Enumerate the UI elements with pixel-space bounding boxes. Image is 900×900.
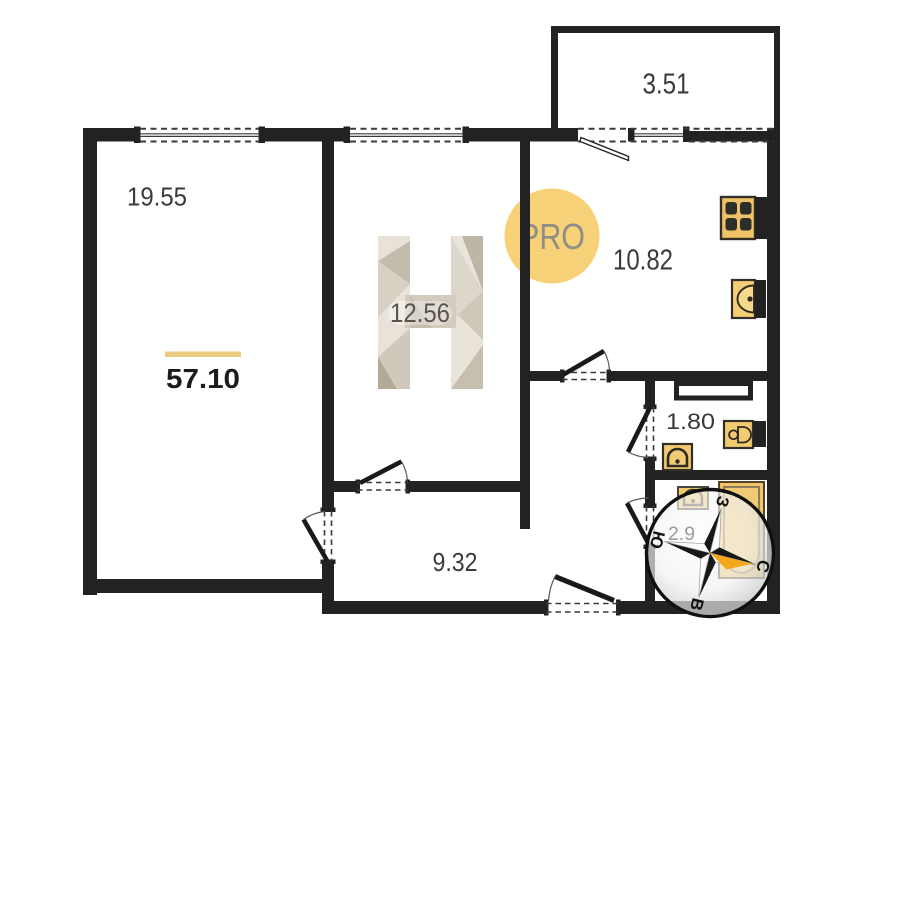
svg-text:9.32: 9.32	[433, 547, 478, 577]
svg-text:19.55: 19.55	[127, 184, 187, 212]
svg-text:12.56: 12.56	[390, 298, 450, 328]
svg-text:3.51: 3.51	[643, 69, 690, 101]
svg-text:57.10: 57.10	[166, 363, 240, 394]
svg-text:10.82: 10.82	[613, 245, 673, 277]
svg-text:1.80: 1.80	[666, 409, 715, 434]
